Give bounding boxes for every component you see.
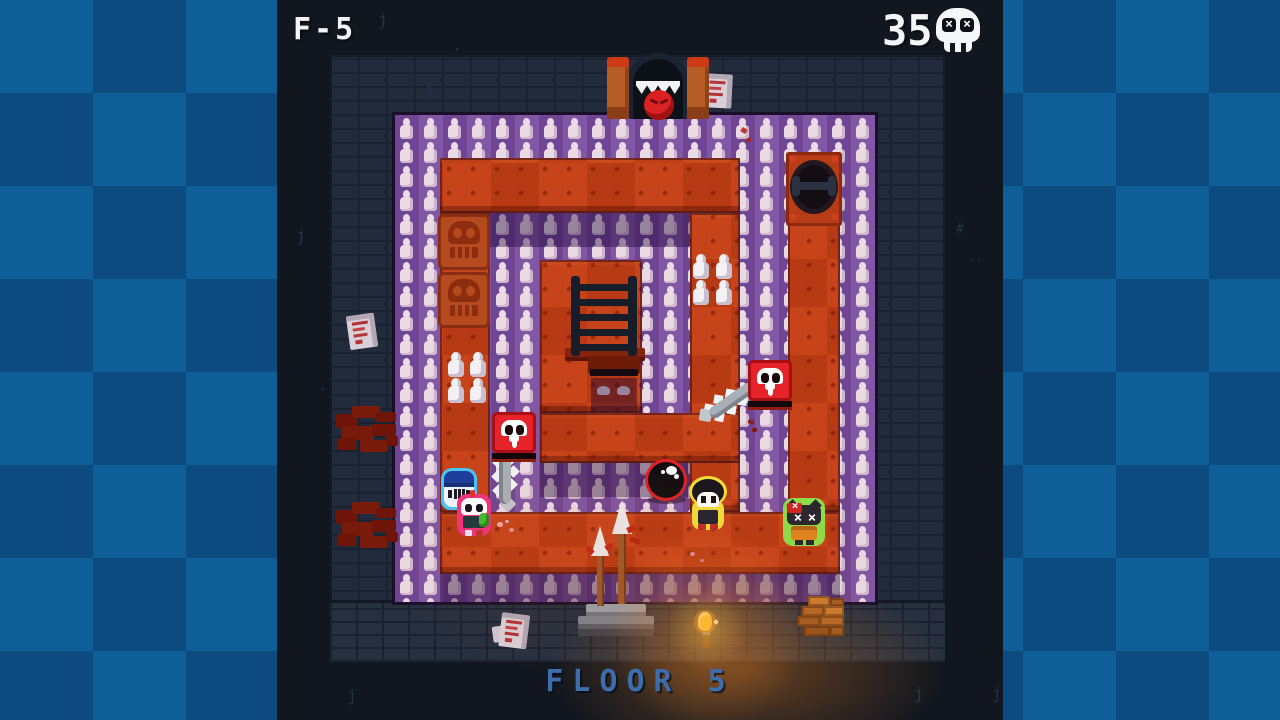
candle-tile — [424, 533, 437, 547]
candle-tile — [664, 389, 677, 403]
candle-tile — [856, 149, 869, 163]
frame-glyph: j — [296, 226, 306, 245]
candle-tile — [424, 341, 437, 355]
candle-tile — [400, 269, 413, 283]
candle-tile — [760, 317, 773, 331]
candle-tile — [520, 269, 533, 283]
candle-tile — [856, 533, 869, 547]
candle-pin — [446, 352, 466, 378]
candle-tile — [520, 389, 533, 403]
candle-tile — [400, 533, 413, 547]
candle-tile — [760, 197, 773, 211]
candle-tile — [400, 173, 413, 187]
candle-tile — [856, 269, 869, 283]
frame-glyph: j — [992, 684, 1002, 703]
candle-tile — [856, 581, 869, 595]
dust-specks — [690, 552, 710, 566]
candle-pin — [691, 280, 711, 306]
candle-tile — [424, 197, 437, 211]
trapdoor — [788, 152, 840, 226]
frame-glyph: # — [956, 222, 964, 237]
candle-tile — [496, 269, 509, 283]
candle-tile — [520, 461, 533, 475]
candle-tile — [760, 173, 773, 187]
candle-tile — [424, 365, 437, 379]
candle-tile — [664, 365, 677, 379]
candle-tile — [856, 173, 869, 187]
path-shadow — [440, 574, 840, 602]
blood-splatter — [336, 406, 398, 452]
candle-tile — [544, 245, 557, 259]
candle-tile — [664, 293, 677, 307]
candle-tile — [856, 509, 869, 523]
candle-tile — [520, 125, 533, 139]
candle-tile — [664, 125, 677, 139]
candle-pin — [468, 378, 488, 404]
frame-glyph: j — [347, 686, 357, 705]
candle-tile — [400, 413, 413, 427]
candle-tile — [856, 485, 869, 499]
candle-tile — [496, 245, 509, 259]
candle-tile — [544, 125, 557, 139]
candle-tile — [760, 461, 773, 475]
candle-tile — [664, 317, 677, 331]
candle-tile — [496, 365, 509, 379]
candle-tile — [400, 197, 413, 211]
candle-tile — [664, 245, 677, 259]
skull-carving — [438, 272, 490, 328]
torch — [692, 608, 720, 648]
debris-specks — [748, 420, 760, 434]
frame-glyph: j — [914, 684, 924, 703]
candle-tile — [424, 581, 437, 595]
candle-tile — [424, 509, 437, 523]
character-cat-demon: ××× — [783, 496, 825, 548]
candle-tile — [520, 341, 533, 355]
candle-tile — [424, 317, 437, 331]
candle-tile — [760, 245, 773, 259]
game-screen: F-5 35 FLOOR 5 ×××××jjj·#··jjj· — [0, 0, 1280, 720]
candle-tile — [856, 221, 869, 235]
character-afro-skeleton — [688, 476, 728, 534]
frame-glyph: · — [318, 380, 328, 399]
candle-tile — [400, 149, 413, 163]
candle-tile — [400, 245, 413, 259]
candle-tile — [760, 437, 773, 451]
candle-tile — [688, 125, 701, 139]
candle-tile — [712, 125, 725, 139]
candle-tile — [520, 293, 533, 307]
candle-tile — [424, 293, 437, 307]
candle-pin — [446, 378, 466, 404]
floor-code: F-5 — [293, 12, 356, 47]
candle-tile — [400, 365, 413, 379]
candle-tile — [856, 317, 869, 331]
brick-pile — [798, 596, 848, 638]
candle-tile — [856, 125, 869, 139]
candle-tile — [616, 245, 629, 259]
wall-paper-note — [346, 310, 385, 352]
candle-tile — [760, 485, 773, 499]
gate-with-slime — [601, 53, 715, 127]
candle-tile — [856, 197, 869, 211]
candle-tile — [424, 461, 437, 475]
candle-pin — [714, 280, 734, 306]
candle-tile — [424, 173, 437, 187]
candle-tile — [760, 149, 773, 163]
candle-tile — [400, 461, 413, 475]
candle-tile — [856, 557, 869, 571]
candle-tile — [664, 269, 677, 283]
path-top-bar — [440, 158, 740, 213]
candle-tile — [520, 485, 533, 499]
candle-tile — [760, 341, 773, 355]
frame-glyph: j — [425, 80, 435, 99]
candle-tile — [400, 437, 413, 451]
ladder — [571, 276, 637, 356]
frame-glyph: ·· — [968, 254, 982, 268]
candle-tile — [424, 149, 437, 163]
candle-tile — [640, 125, 653, 139]
candle-tile — [424, 485, 437, 499]
candle-tile — [520, 245, 533, 259]
debris-specks — [741, 128, 753, 146]
candle-tile — [424, 125, 437, 139]
candle-tile — [856, 293, 869, 307]
candle-tile — [448, 125, 461, 139]
bomb — [645, 459, 689, 505]
candle-tile — [424, 389, 437, 403]
candle-tile — [400, 341, 413, 355]
skull-carving — [438, 214, 490, 270]
candle-tile — [400, 581, 413, 595]
candle-pin — [691, 254, 711, 280]
candle-tile — [496, 317, 509, 331]
candle-tile — [424, 413, 437, 427]
candle-tile — [616, 125, 629, 139]
candle-tile — [760, 269, 773, 283]
candle-tile — [832, 125, 845, 139]
candle-tile — [400, 509, 413, 523]
alcove-step — [588, 356, 640, 412]
skull-block — [748, 360, 792, 410]
candle-tile — [424, 269, 437, 283]
candle-tile — [592, 125, 605, 139]
frame-glyph: j — [378, 10, 388, 29]
candle-tile — [424, 437, 437, 451]
frame-glyph: · — [452, 40, 462, 59]
blood-splatter — [336, 502, 398, 548]
candle-tile — [592, 245, 605, 259]
candle-tile — [808, 125, 821, 139]
skull-count-value: 35 — [882, 6, 933, 55]
candle-tile — [760, 413, 773, 427]
floor-paper-note — [496, 610, 537, 654]
candle-tile — [856, 245, 869, 259]
candle-tile — [760, 293, 773, 307]
candle-tile — [520, 365, 533, 379]
candle-tile — [856, 413, 869, 427]
candle-tile — [400, 389, 413, 403]
candle-tile — [856, 365, 869, 379]
skull-block — [492, 412, 536, 462]
candle-tile — [784, 125, 797, 139]
candle-tile — [496, 389, 509, 403]
candle-tile — [424, 221, 437, 235]
candle-tile — [400, 125, 413, 139]
candle-tile — [424, 557, 437, 571]
candle-tile — [760, 221, 773, 235]
floor-label: FLOOR 5 — [545, 664, 734, 699]
candle-pin — [468, 352, 488, 378]
candle-tile — [496, 125, 509, 139]
candle-tile — [856, 461, 869, 475]
candle-pin — [714, 254, 734, 280]
candle-tile — [400, 557, 413, 571]
spear — [611, 500, 639, 608]
candle-tile — [664, 341, 677, 355]
dust-specks — [497, 520, 519, 536]
candle-tile — [472, 125, 485, 139]
candle-tile — [400, 293, 413, 307]
candle-tile — [520, 317, 533, 331]
candle-tile — [568, 245, 581, 259]
candle-tile — [424, 245, 437, 259]
candle-tile — [856, 341, 869, 355]
skull-counter-icon: ×× — [934, 8, 982, 54]
candle-tile — [856, 389, 869, 403]
candle-tile — [496, 293, 509, 307]
candle-tile — [760, 125, 773, 139]
candle-tile — [856, 437, 869, 451]
candle-tile — [640, 245, 653, 259]
candle-tile — [568, 125, 581, 139]
candle-tile — [400, 485, 413, 499]
character-player-skull — [455, 490, 493, 540]
candle-tile — [400, 317, 413, 331]
candle-tile — [496, 341, 509, 355]
candle-tile — [400, 221, 413, 235]
